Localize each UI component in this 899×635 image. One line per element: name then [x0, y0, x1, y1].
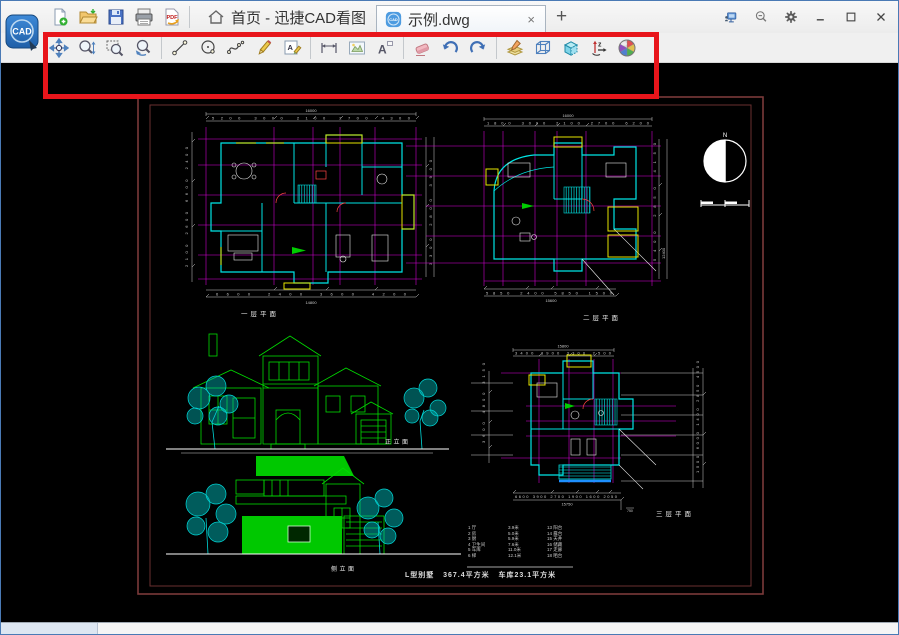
rotate-axis-button[interactable]: z	[587, 36, 611, 60]
measure-length-button[interactable]	[317, 36, 341, 60]
svg-text:15750: 15750	[561, 502, 573, 507]
eraser-icon	[412, 38, 432, 58]
view-3d-solid-button[interactable]	[559, 36, 583, 60]
toolbar: A A z	[1, 33, 898, 63]
svg-text:12400: 12400	[661, 247, 666, 259]
front-elevation-drawing	[166, 334, 449, 453]
export-pdf-button[interactable]: PDF	[161, 6, 183, 28]
svg-text:14800: 14800	[305, 300, 317, 305]
app-logo[interactable]: CAD	[5, 14, 39, 51]
color-wheel-button[interactable]	[615, 36, 639, 60]
undo-button[interactable]	[438, 36, 462, 60]
measure-length-icon	[319, 38, 339, 58]
text-edit-tool-button[interactable]: A	[280, 36, 304, 60]
svg-text:A: A	[378, 42, 387, 56]
toolbar-separator	[310, 37, 311, 59]
pan-icon	[49, 38, 69, 58]
toolbar-separator	[403, 37, 404, 59]
view-3d-wireframe-button[interactable]	[531, 36, 555, 60]
tab-document[interactable]: CAD 示例.dwg ×	[376, 5, 546, 33]
svg-text:6600 3900 2700 1900 1600 2050: 6600 3900 2700 1900 1600 2050	[515, 494, 618, 499]
print-icon	[134, 7, 154, 27]
plan2-drawing: 16000 1800 3000 2100 2700 6200 5400 2850…	[406, 113, 667, 303]
rotate-axis-icon: z	[589, 38, 609, 58]
line-tool-button[interactable]	[168, 36, 192, 60]
settings-button[interactable]	[778, 5, 804, 29]
zoom-window-icon	[105, 38, 125, 58]
svg-text:750: 750	[627, 509, 633, 513]
maximize-icon	[844, 7, 858, 27]
legend-column-2: 3.9米 5.0米 5.9米 7.6米 11.0米 12.1米	[508, 525, 521, 559]
sheet-caption: L型别墅 367.4平方米 车库23.1平方米	[405, 570, 556, 580]
svg-text:15800: 15800	[557, 344, 569, 349]
svg-text:16000: 16000	[305, 108, 317, 113]
layers-icon	[505, 38, 525, 58]
svg-text:1500 6000 1400 2850 4500: 1500 6000 1400 2850 4500	[695, 360, 700, 473]
open-folder-icon	[78, 7, 98, 27]
layers-button[interactable]	[503, 36, 527, 60]
side-elevation-drawing	[166, 456, 461, 554]
print-button[interactable]	[133, 6, 155, 28]
front-elevation-label: 正立面	[385, 438, 411, 446]
circle-tool-button[interactable]	[196, 36, 220, 60]
plan1-drawing: 16000 5200 3000 2100 2700 4300 6600 2400…	[184, 108, 434, 305]
plan2-label: 二层平面	[583, 314, 621, 322]
zoom-window-button[interactable]	[103, 36, 127, 60]
scale-bar	[701, 200, 749, 207]
new-file-icon	[50, 7, 70, 27]
svg-text:16000: 16000	[562, 113, 574, 118]
toolbar-separator	[496, 37, 497, 59]
minimize-icon	[814, 7, 828, 27]
app-logo-text: CAD	[12, 27, 32, 37]
statusbar	[1, 622, 898, 635]
zoom-dynamic-button[interactable]	[75, 36, 99, 60]
magnifier-minus-icon	[754, 7, 768, 27]
titlebar-separator	[189, 6, 190, 28]
open-file-button[interactable]	[77, 6, 99, 28]
cube-wireframe-icon	[533, 38, 553, 58]
zoom-dynamic-icon	[77, 38, 97, 58]
new-tab-button[interactable]: +	[546, 6, 577, 28]
redo-icon	[468, 38, 488, 58]
titlebar: PDF 首页 - 迅捷CAD看图 CAD 示例.dwg × +	[1, 1, 898, 33]
statusbar-left-segment	[1, 623, 98, 635]
measure-area-icon	[347, 38, 367, 58]
cad-drawing: 16000 5200 3000 2100 2700 4300 6600 2400…	[1, 63, 899, 622]
cad-file-icon: CAD	[385, 11, 402, 28]
plan3-drawing: 15800 3400 3900 3300 2500 3600 4800 3150…	[471, 344, 706, 514]
svg-text:z: z	[598, 41, 602, 48]
pan-tool-button[interactable]	[47, 36, 71, 60]
zoom-previous-button[interactable]	[131, 36, 155, 60]
home-tab-label: 首页 - 迅捷CAD看图	[231, 7, 366, 28]
undo-icon	[440, 38, 460, 58]
legend-column-3: 13 阳台 14 露台 15 天井 16 储藏 17 走廊 18 晒台	[547, 525, 562, 559]
maximize-button[interactable]	[838, 5, 864, 29]
tab-home[interactable]: 首页 - 迅捷CAD看图	[196, 1, 376, 33]
svg-text:2100 2600 6600 2400: 2100 2600 6600 2400	[184, 146, 189, 267]
svg-text:N: N	[723, 133, 727, 139]
spline-icon	[226, 38, 246, 58]
north-compass: N	[704, 133, 746, 182]
close-icon	[874, 7, 888, 27]
svg-text:5850 2400 5850 1500: 5850 2400 5850 1500	[486, 291, 613, 296]
save-icon	[106, 7, 126, 27]
doc-tab-label: 示例.dwg	[408, 9, 470, 30]
spline-tool-button[interactable]	[224, 36, 248, 60]
measure-area-button[interactable]	[345, 36, 369, 60]
export-pdf-icon: PDF	[162, 7, 182, 27]
brush-tool-button[interactable]	[252, 36, 276, 60]
svg-text:CAD: CAD	[389, 17, 398, 22]
line-icon	[170, 38, 190, 58]
cad-canvas[interactable]: 16000 5200 3000 2100 2700 4300 6600 2400…	[1, 63, 899, 622]
zoom-search-button[interactable]	[748, 5, 774, 29]
plan1-label: 一层平面	[241, 310, 279, 318]
close-tab-button[interactable]: ×	[525, 12, 537, 27]
svg-text:3300 2800 3900: 3300 2800 3900	[428, 159, 433, 265]
home-icon	[206, 7, 226, 27]
eraser-tool-button[interactable]	[410, 36, 434, 60]
toolbar-separator	[161, 37, 162, 59]
cube-solid-icon	[561, 38, 581, 58]
app-window: PDF 首页 - 迅捷CAD看图 CAD 示例.dwg × + CAD	[0, 0, 899, 635]
close-button[interactable]	[868, 5, 894, 29]
save-button[interactable]	[105, 6, 127, 28]
legend-column-1: 1 厅 2 房 3 厨 4 卫生间 5 车库 6 梯	[468, 525, 485, 559]
side-elevation-label: 侧立面	[331, 565, 357, 573]
text-annotation-icon: A	[375, 38, 395, 58]
svg-text:A: A	[288, 43, 294, 52]
svg-text:5200 3000 2100 2700 430: 5200 3000 2100 2700 4300	[212, 116, 411, 121]
svg-text:15600: 15600	[545, 298, 557, 303]
zoom-previous-icon	[133, 38, 153, 58]
svg-text:3600 4800 3150: 3600 4800 3150	[481, 362, 486, 443]
redo-button[interactable]	[466, 36, 490, 60]
text-annotation-button[interactable]: A	[373, 36, 397, 60]
minimize-button[interactable]	[808, 5, 834, 29]
remote-monitor-button[interactable]	[718, 5, 744, 29]
brush-icon	[254, 38, 274, 58]
gear-icon	[784, 7, 798, 27]
svg-text:3400 3900 3300 2500: 3400 3900 3300 2500	[515, 351, 612, 356]
plan3-label: 三层平面	[656, 510, 694, 518]
svg-text:6600 2400 3600 4200: 6600 2400 3600 4200	[216, 292, 407, 297]
remote-monitor-icon	[724, 7, 738, 27]
text-edit-icon: A	[282, 38, 302, 58]
new-file-button[interactable]	[49, 6, 71, 28]
svg-text:1800 3000 2100 2700 6200: 1800 3000 2100 2700 6200	[487, 121, 650, 126]
svg-text:5400 2850 4150: 5400 2850 4150	[652, 142, 657, 261]
color-wheel-icon	[617, 38, 637, 58]
circle-icon	[198, 38, 218, 58]
